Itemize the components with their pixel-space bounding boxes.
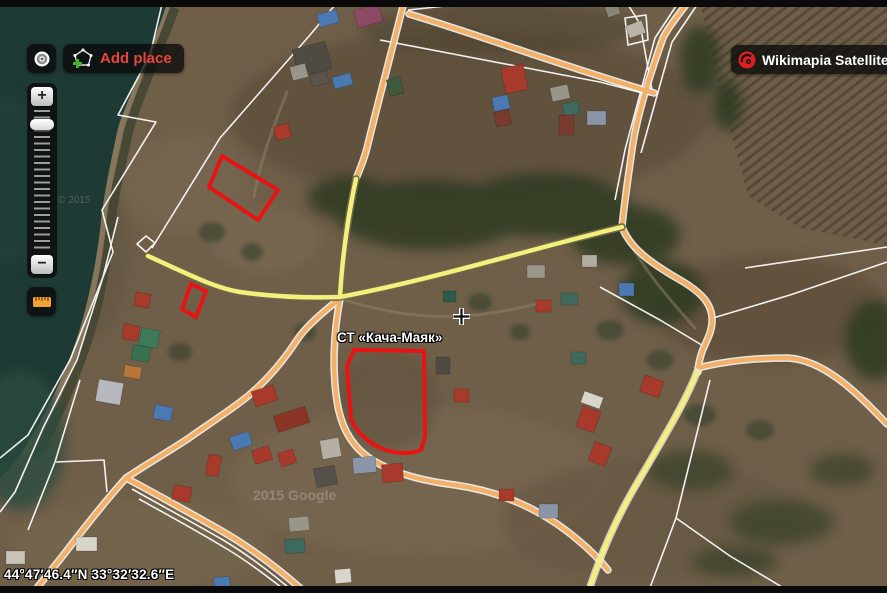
sea [0,0,168,510]
imagery-watermark: 2015 Google [253,487,336,503]
black-bar-top [0,0,887,7]
ruler-icon [32,294,52,310]
zoom-out-button[interactable]: − [31,255,53,274]
satellite-map-canvas[interactable]: 2015 Google © 2015 [0,0,887,593]
wikimapia-logo-icon [738,51,756,69]
add-place-label: Add place [100,50,172,67]
measure-tool-button[interactable] [27,287,56,316]
imagery-watermark-secondary: © 2015 [58,195,91,206]
layer-switcher-button[interactable]: Wikimapia Satellite [731,45,887,74]
pentagon-plus-icon [71,47,94,70]
zoom-scale-ticks [34,110,50,253]
zoom-in-button[interactable]: + [31,87,53,106]
layer-switcher-label: Wikimapia Satellite [762,52,887,68]
map-viewport[interactable]: 2015 Google © 2015 Add place Wikimapia [0,0,887,593]
zoom-control[interactable]: + − [27,83,57,278]
place-label[interactable]: СТ «Кача-Маяк» [337,330,442,345]
crosshair-circle-icon [33,50,51,68]
black-bar-bottom [0,586,887,593]
zoom-slider-handle[interactable] [30,119,54,130]
locate-button[interactable] [27,44,56,73]
cursor-coordinates: 44°47′46.4″N 33°32′32.6″E [4,567,174,582]
add-place-button[interactable]: Add place [63,44,184,73]
parcel-outline[interactable] [182,284,206,317]
